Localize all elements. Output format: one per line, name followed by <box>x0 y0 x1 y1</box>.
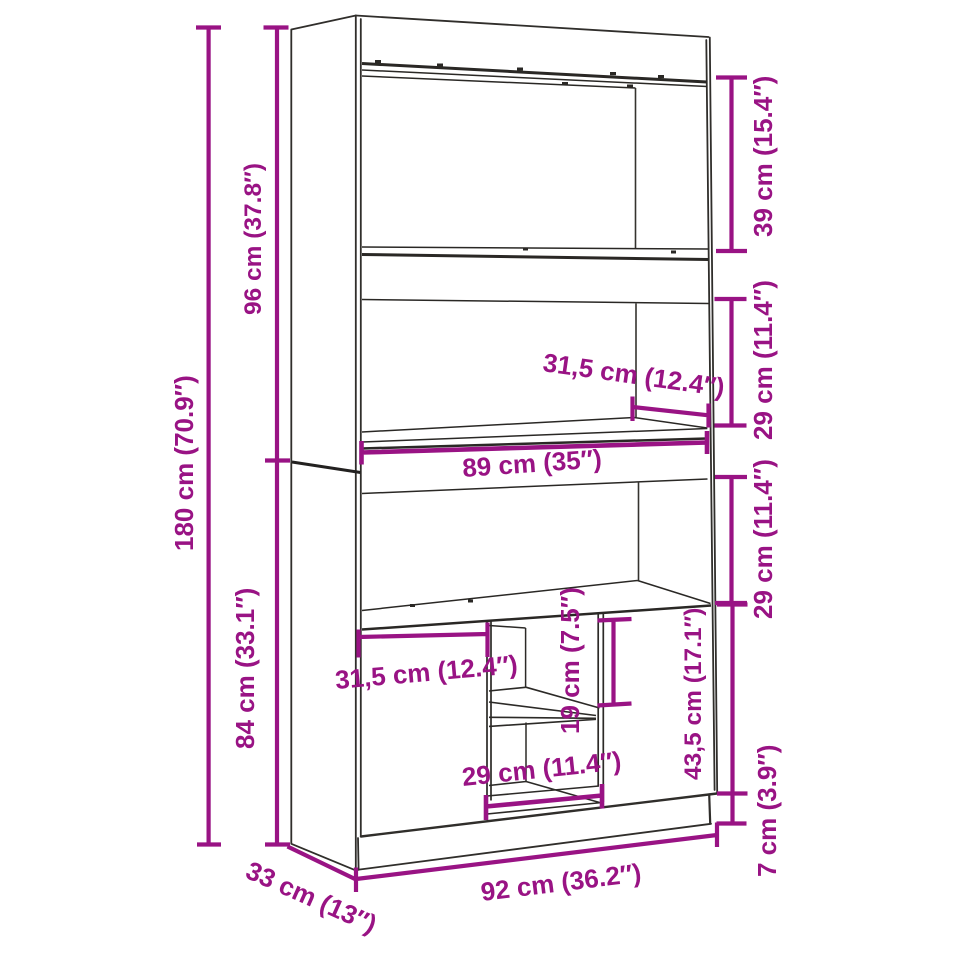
svg-text:84 cm (33.1″): 84 cm (33.1″) <box>230 588 260 749</box>
svg-text:29 cm (11.4″): 29 cm (11.4″) <box>748 459 778 619</box>
svg-text:29 cm (11.4″): 29 cm (11.4″) <box>748 280 778 440</box>
svg-text:96 cm (37.8″): 96 cm (37.8″) <box>240 163 267 315</box>
svg-text:7 cm (3.9″): 7 cm (3.9″) <box>752 745 782 877</box>
svg-text:180 cm (70.9″): 180 cm (70.9″) <box>169 375 199 551</box>
svg-text:19 cm (7.5″): 19 cm (7.5″) <box>555 587 585 734</box>
svg-text:39 cm (15.4″): 39 cm (15.4″) <box>748 76 778 237</box>
svg-text:43,5 cm (17.1″): 43,5 cm (17.1″) <box>680 608 707 780</box>
